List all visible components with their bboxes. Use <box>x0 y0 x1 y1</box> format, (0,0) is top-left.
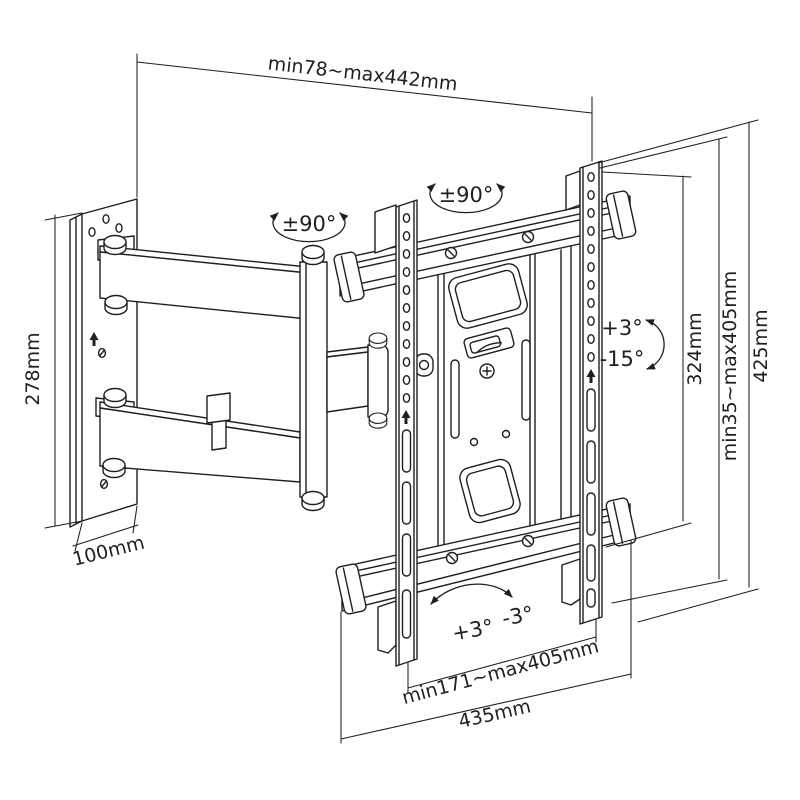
dim-label-tv-height-range: min35~max405mm <box>719 271 741 462</box>
dim-label-bracket-height: 425mm <box>750 309 772 382</box>
angle-label-level-plus: +3° <box>450 615 495 646</box>
rail-slot <box>587 389 595 607</box>
extension-arm <box>327 347 368 412</box>
dim-label-wall-plate-height: 278mm <box>22 332 44 405</box>
angle-tilt: +3° -15° <box>600 316 665 371</box>
angle-label-swivel-arm: ±90° <box>282 212 337 236</box>
vesa-plate <box>438 233 571 561</box>
dim-extension-depth: min78~max442mm <box>137 52 592 197</box>
dim-label-extension-depth: min78~max442mm <box>267 52 459 95</box>
pivot-barrel <box>415 354 433 376</box>
dim-wall-plate-height: 278mm <box>22 213 82 528</box>
plate-slot <box>522 340 530 420</box>
plate-slot <box>451 360 459 438</box>
dim-label-vesa-inner-height: 324mm <box>684 312 706 385</box>
angle-label-level-minus: -3° <box>500 602 535 631</box>
dim-rail-span-range: min171~max405mm <box>400 620 601 709</box>
swivel-post <box>300 262 327 497</box>
angle-label-tilt-up: +3° <box>601 316 642 340</box>
angle-level: +3° -3° <box>431 584 535 645</box>
angle-label-swivel-mount: ±90° <box>439 183 494 207</box>
tv-wall-mount-diagram: min78~max442mm 278mm 100mm 324mm min35~m… <box>0 0 800 800</box>
plate-center-screw <box>480 364 494 378</box>
dim-label-bracket-width: 435mm <box>457 695 533 733</box>
angle-swivel-mount: ±90° <box>430 183 502 213</box>
lower-arm <box>96 393 300 482</box>
dim-label-wall-plate-width: 100mm <box>70 532 146 571</box>
angle-swivel-arm: ±90° <box>273 212 345 242</box>
dim-label-rail-span-range: min171~max405mm <box>400 635 601 709</box>
angle-label-tilt-down: -15° <box>600 347 645 371</box>
